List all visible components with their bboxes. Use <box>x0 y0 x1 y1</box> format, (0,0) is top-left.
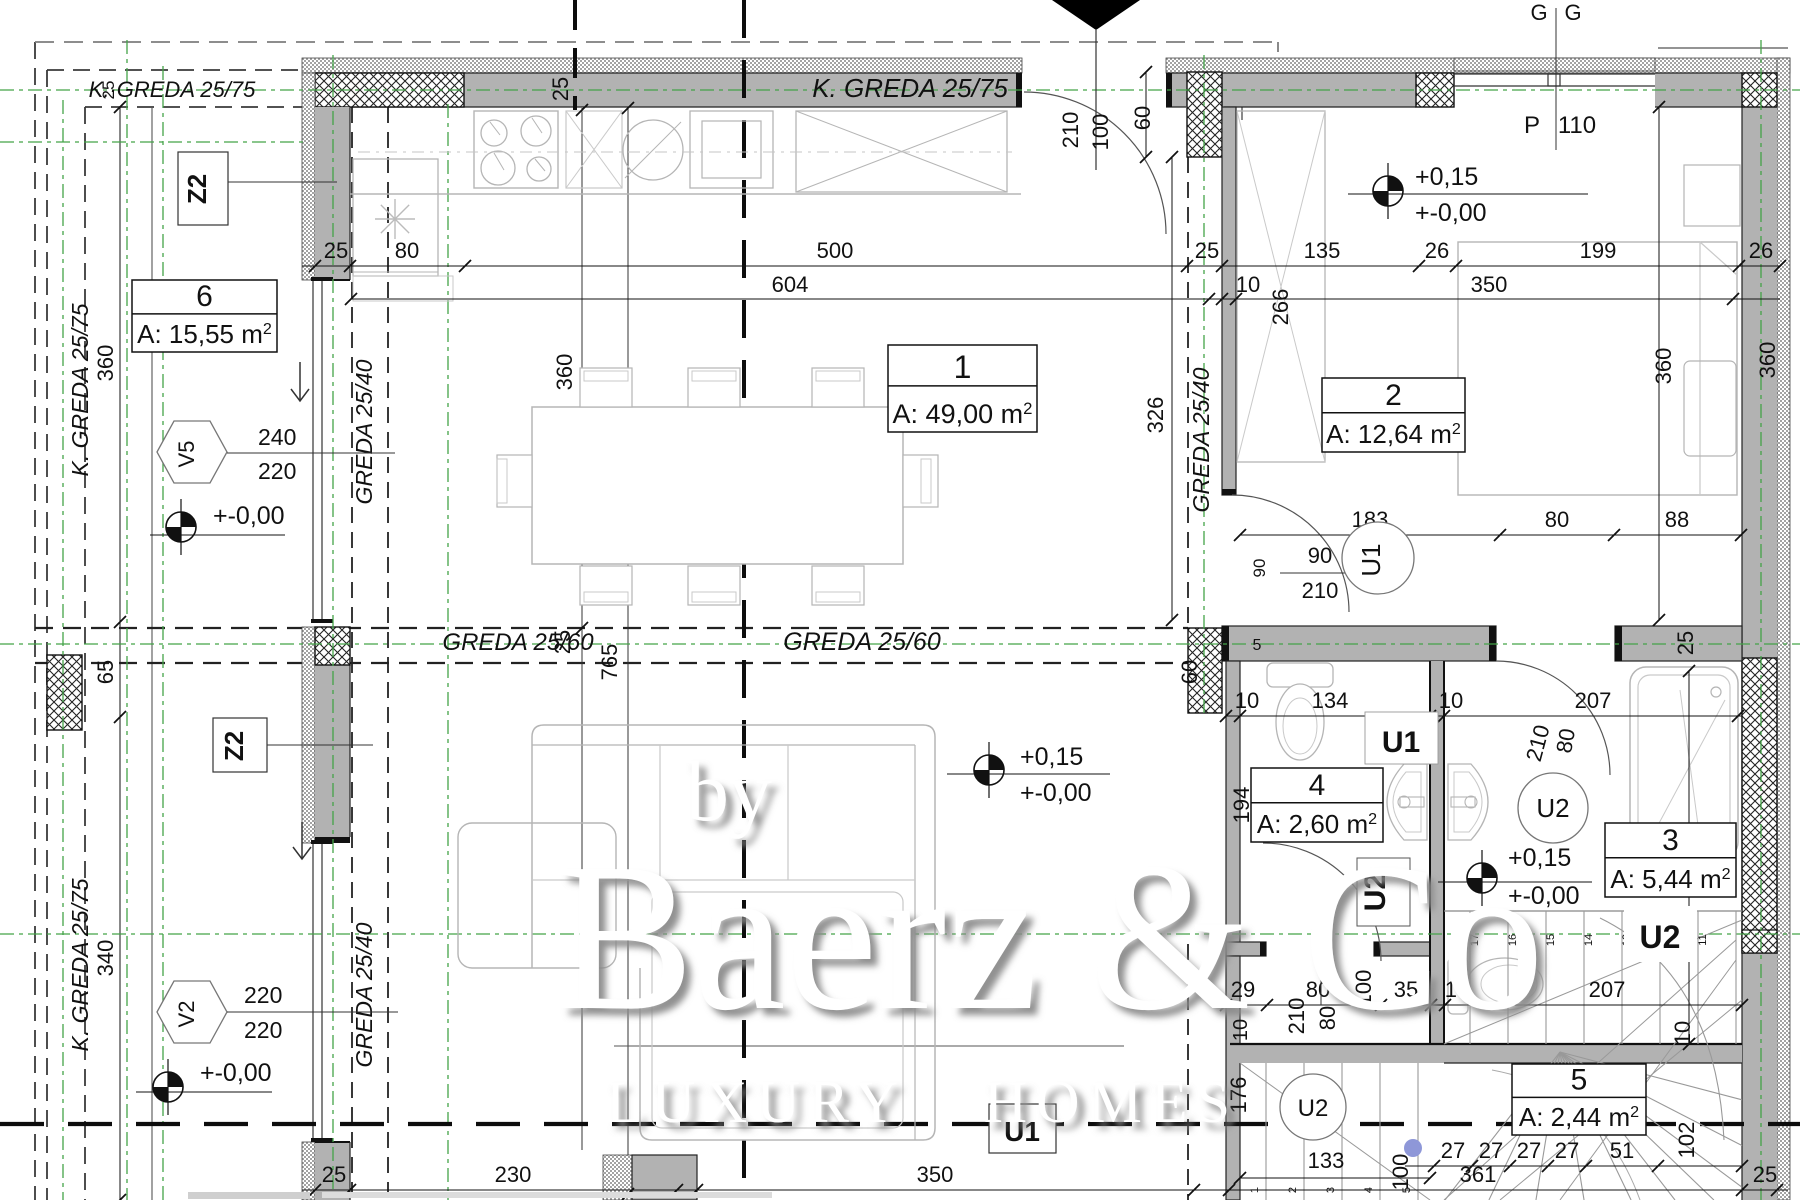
svg-text:A: 2,44 m2: A: 2,44 m2 <box>1519 1102 1639 1132</box>
svg-text:100: 100 <box>1388 1154 1413 1191</box>
svg-text:65: 65 <box>93 660 118 684</box>
svg-text:80: 80 <box>395 238 419 263</box>
svg-text:10: 10 <box>1235 688 1259 713</box>
svg-text:25: 25 <box>548 77 573 101</box>
svg-text:A: 12,64 m2: A: 12,64 m2 <box>1326 419 1461 449</box>
svg-text:+0,15: +0,15 <box>1020 743 1083 771</box>
svg-text:51: 51 <box>1610 1138 1634 1163</box>
svg-text:Baerz & Co: Baerz & Co <box>556 819 1544 1054</box>
svg-text:LUXURY HOMES: LUXURY HOMES <box>606 1069 1242 1135</box>
svg-text:+0,15: +0,15 <box>1415 163 1478 191</box>
svg-text:25: 25 <box>322 1162 346 1187</box>
svg-text:GREDA 25/40: GREDA 25/40 <box>351 359 377 504</box>
svg-text:266: 266 <box>1268 289 1293 326</box>
svg-text:134: 134 <box>1312 688 1349 713</box>
svg-text:199: 199 <box>1580 238 1617 263</box>
svg-text:GREDA 25/40: GREDA 25/40 <box>351 922 377 1067</box>
svg-text:220: 220 <box>244 1017 282 1043</box>
svg-text:+-0,00: +-0,00 <box>1020 779 1092 807</box>
svg-text:5: 5 <box>1571 1063 1588 1096</box>
svg-text:1: 1 <box>954 349 972 385</box>
svg-text:P: P <box>1524 112 1540 139</box>
svg-text:604: 604 <box>772 272 809 297</box>
svg-text:A: 49,00 m2: A: 49,00 m2 <box>893 399 1033 429</box>
svg-text:80: 80 <box>1545 507 1569 532</box>
svg-text:350: 350 <box>917 1162 954 1187</box>
svg-text:240: 240 <box>258 424 296 450</box>
svg-text:27: 27 <box>1479 1138 1503 1163</box>
svg-text:26: 26 <box>1749 238 1773 263</box>
svg-text:90: 90 <box>1250 559 1269 578</box>
svg-text:4: 4 <box>1309 769 1326 802</box>
svg-text:K. GREDA 25/75: K. GREDA 25/75 <box>812 73 1008 103</box>
svg-text:27: 27 <box>1555 1138 1579 1163</box>
svg-text:361: 361 <box>1460 1162 1497 1187</box>
svg-text:25: 25 <box>1195 238 1219 263</box>
svg-text:210: 210 <box>1302 578 1339 603</box>
svg-text:G: G <box>1564 0 1581 25</box>
svg-text:360: 360 <box>1651 348 1676 385</box>
svg-text:207: 207 <box>1575 688 1612 713</box>
svg-text:U2: U2 <box>1298 1095 1329 1122</box>
svg-text:102: 102 <box>1674 1122 1699 1159</box>
svg-text:80: 80 <box>1551 726 1580 754</box>
svg-text:Z2: Z2 <box>182 174 212 204</box>
svg-text:14: 14 <box>1583 934 1595 946</box>
svg-text:5: 5 <box>1253 637 1262 654</box>
svg-text:+-0,00: +-0,00 <box>1415 199 1487 227</box>
svg-text:3: 3 <box>1662 824 1679 857</box>
svg-text:100: 100 <box>1088 114 1113 151</box>
svg-text:90: 90 <box>1308 543 1332 568</box>
svg-text:25: 25 <box>1753 1162 1777 1187</box>
svg-text:K. GREDA 25/75: K. GREDA 25/75 <box>67 878 93 1051</box>
svg-text:25: 25 <box>324 238 348 263</box>
svg-text:11: 11 <box>1697 934 1709 945</box>
svg-text:2: 2 <box>1385 379 1402 412</box>
svg-text:K. GREDA 25/75: K. GREDA 25/75 <box>67 303 93 476</box>
svg-text:+-0,00: +-0,00 <box>213 502 285 530</box>
svg-text:360: 360 <box>552 354 577 391</box>
svg-text:60: 60 <box>1177 660 1202 684</box>
svg-text:340: 340 <box>93 940 118 977</box>
svg-text:A: 15,55 m2: A: 15,55 m2 <box>137 319 272 349</box>
svg-text:360: 360 <box>93 345 118 382</box>
svg-text:10: 10 <box>1439 688 1463 713</box>
svg-text:26: 26 <box>1425 238 1449 263</box>
svg-text:V5: V5 <box>174 441 199 468</box>
svg-text:110: 110 <box>1558 112 1596 139</box>
svg-text:+-0,00: +-0,00 <box>200 1059 272 1087</box>
svg-text:U2: U2 <box>1640 919 1681 955</box>
svg-text:GREDA 25/60: GREDA 25/60 <box>783 628 941 656</box>
svg-text:15: 15 <box>1545 934 1557 946</box>
svg-text:133: 133 <box>1308 1148 1345 1173</box>
svg-text:27: 27 <box>1517 1138 1541 1163</box>
svg-text:GREDA 25/60: GREDA 25/60 <box>442 629 594 656</box>
svg-text:10: 10 <box>1670 1021 1695 1045</box>
svg-text:230: 230 <box>495 1162 532 1187</box>
svg-text:V2: V2 <box>174 1001 199 1028</box>
svg-text:210: 210 <box>1058 112 1083 149</box>
svg-text:25: 25 <box>1673 631 1698 655</box>
svg-text:220: 220 <box>244 982 282 1008</box>
svg-text:GREDA 25/40: GREDA 25/40 <box>1188 367 1214 512</box>
svg-text:207: 207 <box>1589 977 1626 1002</box>
svg-text:6: 6 <box>196 280 213 313</box>
svg-text:500: 500 <box>817 238 854 263</box>
svg-text:326: 326 <box>1143 397 1168 434</box>
svg-text:135: 135 <box>1304 238 1341 263</box>
svg-text:Z2: Z2 <box>219 731 249 761</box>
svg-text:G: G <box>1530 0 1547 25</box>
svg-text:360: 360 <box>1755 342 1780 379</box>
svg-text:A: 5,44 m2: A: 5,44 m2 <box>1610 864 1730 894</box>
svg-text:350: 350 <box>1471 272 1508 297</box>
svg-text:U1: U1 <box>1356 543 1386 576</box>
svg-text:U1: U1 <box>1382 726 1420 759</box>
svg-text:10: 10 <box>1236 272 1260 297</box>
svg-text:88: 88 <box>1665 507 1689 532</box>
svg-text:K.·GREDA 25/75: K.·GREDA 25/75 <box>89 77 256 102</box>
svg-text:765: 765 <box>597 644 622 681</box>
svg-text:60: 60 <box>1130 106 1155 130</box>
svg-text:220: 220 <box>258 458 296 484</box>
svg-text:27: 27 <box>1441 1138 1465 1163</box>
